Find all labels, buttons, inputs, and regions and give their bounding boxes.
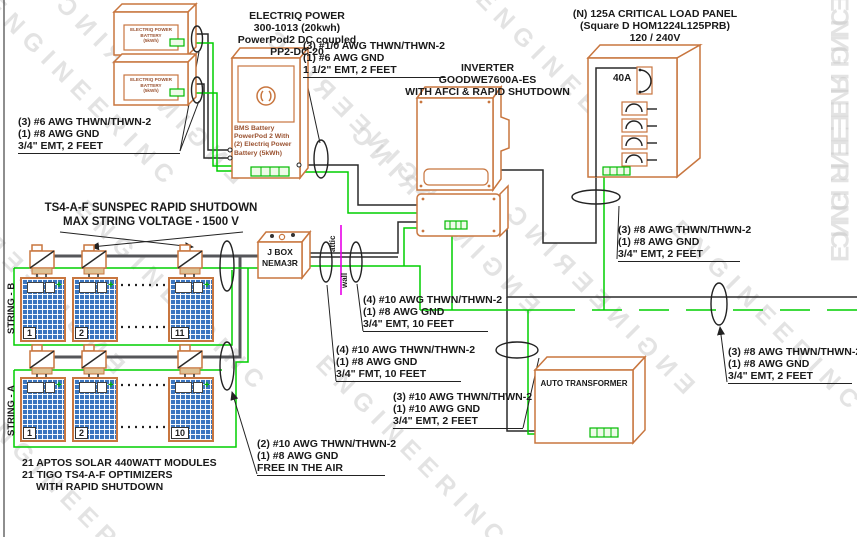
module-number: 10 [171, 427, 189, 439]
bms-terminal [297, 163, 301, 167]
bms-terminal [228, 148, 232, 152]
string-home-runs [35, 256, 258, 357]
module-junction-icon [27, 282, 44, 293]
wire-spec-inverter-autotransformer: (3) #10 AWG THWN/THWN-2 (1) #10 AWG GND … [393, 391, 523, 429]
optimizer-icon [178, 345, 202, 377]
critical-load-panel-box [588, 45, 700, 177]
module-plus-terminal: + [204, 380, 210, 391]
pv-module: + 10 [168, 377, 214, 442]
string-a-label: STRING - A [6, 385, 17, 436]
module-number: 2 [75, 327, 88, 339]
optimizer-icon [30, 245, 54, 277]
wire-spec-bus-exit: (3) #8 AWG THWN/THWN-2 (1) #8 AWG GND 3/… [728, 346, 852, 384]
module-number: 1 [23, 327, 36, 339]
module-junction-icon [175, 382, 192, 393]
bms-terminal [228, 156, 232, 160]
pv-module: + 11 [168, 277, 214, 342]
module-number: 2 [75, 427, 88, 439]
optimizer-note: TS4-A-F SUNSPEC RAPID SHUTDOWN MAX STRIN… [40, 202, 262, 229]
module-plus-terminal: + [56, 380, 62, 391]
bms-box [228, 48, 308, 178]
wire-spec-battery-bms: (3) #6 AWG THWN/THWN-2 (1) #8 AWG GND 3/… [18, 116, 180, 154]
module-number: 1 [23, 427, 36, 439]
module-junction-icon [27, 382, 44, 393]
optimizer-note-arrow [91, 232, 243, 247]
wire-spec-string-free-air: (2) #10 AWG THWN/THWN-2 (1) #8 AWG GND F… [257, 438, 385, 476]
module-plus-terminal: + [204, 280, 210, 291]
bms-to-inverter-wires [289, 165, 417, 213]
bms-label: BMS Battery PowerPod 2 With (2) Electriq… [234, 125, 300, 158]
module-junction-icon [97, 382, 107, 393]
location-attic-label: attic [328, 236, 337, 252]
inverter-title: INVERTER GOODWE7600A-ES WITH AFCI & RAPI… [400, 62, 575, 98]
optimizer-icon [30, 345, 54, 377]
auto-transformer-label: AUTO TRANSFORMER [540, 378, 628, 390]
jbox-label: J BOX NEMA3R [258, 247, 302, 269]
wire-spec-inverter-panel: (3) #8 AWG THWN/THWN-2 (1) #8 AWG GND 3/… [618, 224, 740, 262]
critical-panel-title: (N) 125A CRITICAL LOAD PANEL (Square D H… [560, 8, 750, 44]
module-plus-terminal: + [108, 380, 114, 391]
optimizer-icon [82, 245, 106, 277]
module-plus-terminal: + [56, 280, 62, 291]
pv-module: + 1 [20, 277, 66, 342]
module-junction-icon [175, 282, 192, 293]
optimizer-icon [82, 345, 106, 377]
module-junction-icon [79, 282, 96, 293]
pv-module: + 1 [20, 377, 66, 442]
module-plus-terminal: + [108, 280, 114, 291]
battery-unit-label: ELECTRIQ POWER BATTERY (5kWh) [124, 27, 178, 44]
module-junction-icon [193, 282, 203, 293]
module-junction-icon [79, 382, 96, 393]
wire-spec-jbox-run-1: (4) #10 AWG THWN/THWN-2 (1) #8 AWG GND 3… [363, 294, 488, 332]
module-junction-icon [45, 282, 55, 293]
inverter-box [417, 87, 509, 236]
auto-transformer-box [535, 357, 645, 443]
main-breaker-label: 40A [613, 73, 631, 85]
optimizer-note-arrow [60, 232, 193, 247]
string-b-label: STRING - B [6, 283, 17, 334]
module-junction-icon [193, 382, 203, 393]
module-footnote: 21 APTOS SOLAR 440WATT MODULES 21 TIGO T… [22, 457, 217, 493]
location-wall-label: wall [340, 273, 349, 288]
module-junction-icon [97, 282, 107, 293]
pv-module: + 2 [72, 377, 118, 442]
optimizer-icon [178, 245, 202, 277]
module-junction-icon [45, 382, 55, 393]
wire-spec-jbox-run-2: (4) #10 AWG THWN/THWN-2 (1) #8 AWG GND 3… [336, 344, 461, 382]
battery-unit-label: ELECTRIQ POWER BATTERY (5kWh) [124, 77, 178, 94]
pv-module: + 2 [72, 277, 118, 342]
module-number: 11 [171, 327, 189, 339]
wiring-diagram: ENGINEERINC ENGINEERINC ENGINEERINC ENGI… [0, 0, 857, 537]
